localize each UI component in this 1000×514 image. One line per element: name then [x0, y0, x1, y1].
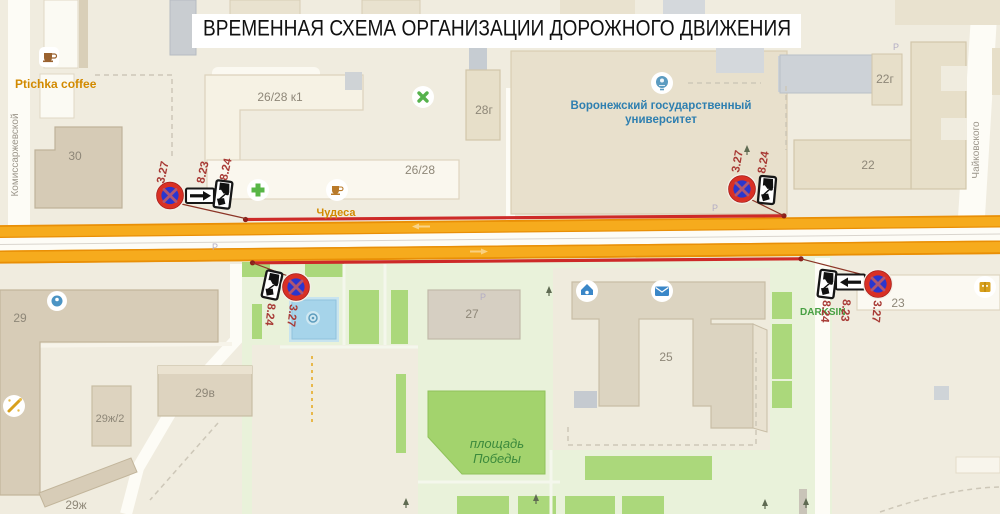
- svg-text:29в: 29в: [195, 386, 215, 400]
- svg-text:22г: 22г: [876, 72, 894, 86]
- svg-text:8.23: 8.23: [838, 299, 852, 322]
- svg-text:3.27: 3.27: [869, 300, 883, 323]
- svg-text:университет: университет: [625, 114, 697, 126]
- svg-text:22: 22: [861, 158, 875, 172]
- svg-text:Воронежский государственный: Воронежский государственный: [571, 100, 752, 112]
- svg-text:26/28: 26/28: [405, 163, 435, 177]
- svg-text:29ж: 29ж: [65, 498, 86, 512]
- svg-text:P: P: [212, 242, 218, 252]
- svg-text:27: 27: [465, 307, 479, 321]
- svg-text:P: P: [712, 203, 718, 213]
- svg-text:площадь: площадь: [470, 436, 524, 451]
- svg-text:26/28 к1: 26/28 к1: [257, 90, 303, 104]
- svg-text:P: P: [480, 292, 486, 302]
- svg-text:Чудеса: Чудеса: [317, 207, 357, 219]
- svg-text:ВРЕМЕННАЯ СХЕМА ОРГАНИЗАЦИИ ДО: ВРЕМЕННАЯ СХЕМА ОРГАНИЗАЦИИ ДОРОЖНОГО ДВ…: [203, 16, 791, 41]
- svg-text:29ж/2: 29ж/2: [96, 413, 125, 425]
- svg-text:P: P: [893, 42, 899, 52]
- svg-text:Победы: Победы: [473, 451, 521, 466]
- svg-text:30: 30: [68, 149, 82, 163]
- svg-text:29: 29: [13, 311, 27, 325]
- svg-text:23: 23: [891, 296, 905, 310]
- svg-text:8.24: 8.24: [818, 300, 832, 324]
- svg-text:Чайковского: Чайковского: [971, 121, 982, 179]
- svg-text:25: 25: [659, 350, 673, 364]
- svg-text:Комиссаржевской: Комиссаржевской: [10, 113, 21, 196]
- svg-text:Ptichka coffee: Ptichka coffee: [15, 77, 97, 91]
- svg-text:28г: 28г: [475, 103, 493, 117]
